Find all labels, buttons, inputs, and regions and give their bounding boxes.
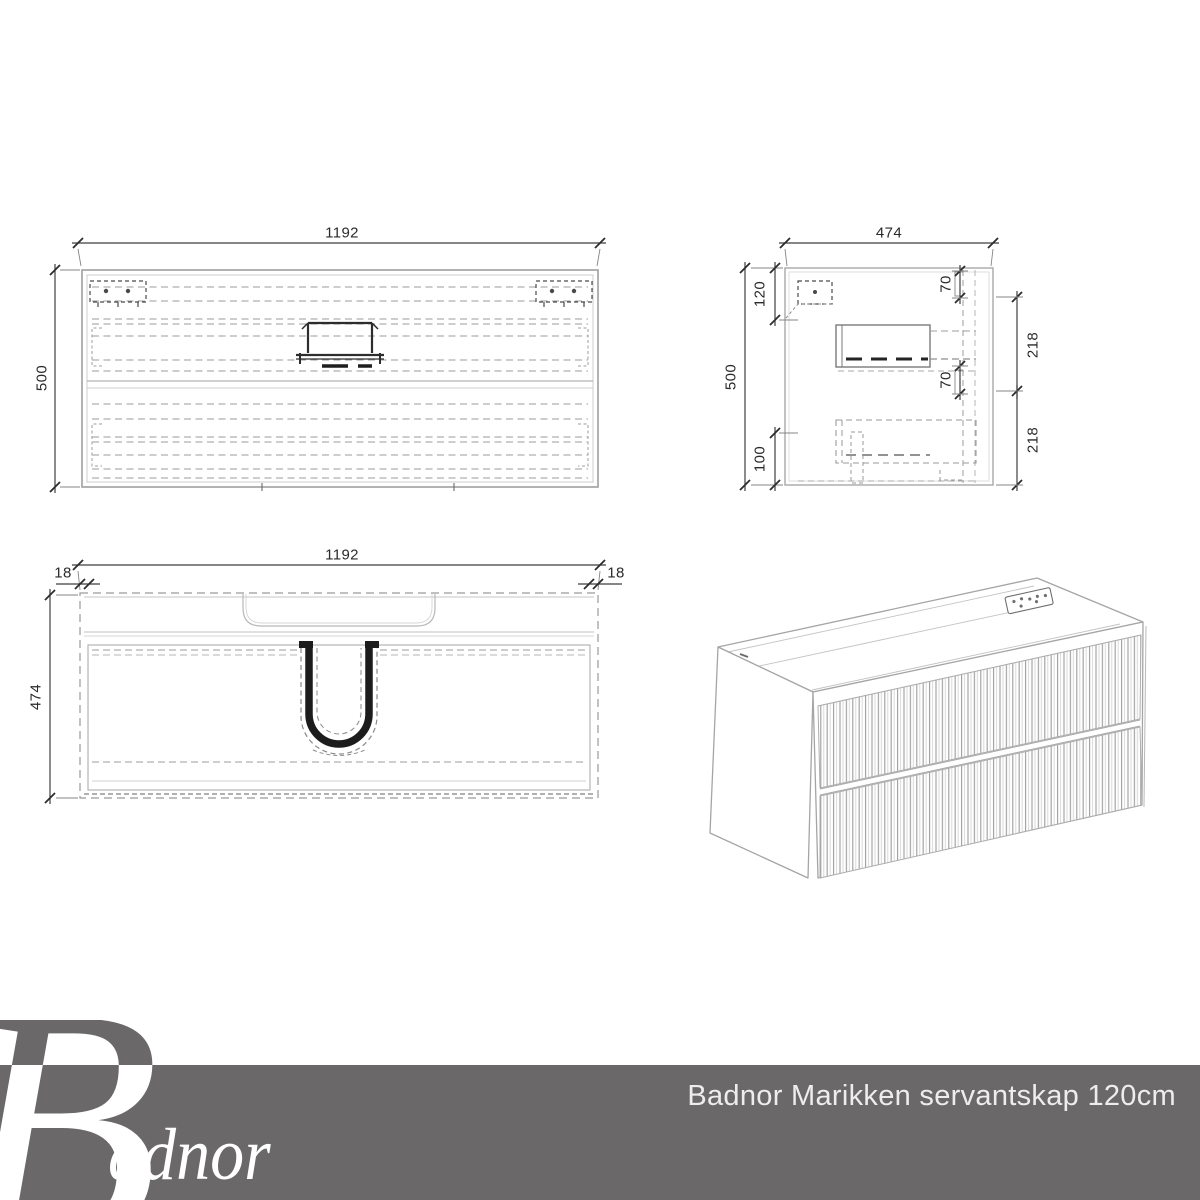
dim-top-depth: 474 bbox=[29, 684, 44, 710]
dim-front-width: 1192 bbox=[325, 226, 359, 241]
drain-bracket bbox=[296, 323, 384, 366]
dim-side-top: 120 bbox=[753, 281, 768, 307]
perspective-view bbox=[710, 578, 1146, 878]
product-label: Badnor Marikken servantskap 120cm bbox=[687, 1082, 1176, 1111]
lower-drawer-section bbox=[798, 420, 976, 483]
dim-front-height: 500 bbox=[35, 365, 50, 391]
mounting-bracket-side bbox=[786, 281, 832, 318]
dim-side-width: 474 bbox=[876, 226, 902, 241]
dim-side-bottom: 100 bbox=[753, 446, 768, 472]
dim-drawer-top: 218 bbox=[1026, 332, 1041, 358]
drawer-front-hidden-lines bbox=[955, 270, 975, 483]
side-view-dimensions bbox=[740, 238, 1023, 491]
upper-drawer-section bbox=[836, 325, 976, 371]
drain-cutout bbox=[299, 641, 379, 756]
drawer-slides bbox=[92, 328, 588, 466]
page: 1192 500 474 500 120 100 70 218 70 218 1… bbox=[0, 0, 1200, 1200]
side-view bbox=[740, 238, 1023, 491]
dim-drawer-bottom: 218 bbox=[1026, 427, 1041, 453]
front-view bbox=[50, 238, 606, 493]
dim-panel-left: 18 bbox=[54, 566, 72, 581]
dim-top-width: 1192 bbox=[325, 548, 359, 563]
mounting-bracket-right bbox=[536, 281, 592, 307]
dim-panel-right: 18 bbox=[607, 566, 625, 581]
dim-notch-bottom: 70 bbox=[939, 371, 954, 389]
hidden-structure-lines bbox=[92, 287, 588, 478]
logo-initial-upper-clip: B bbox=[0, 1020, 320, 1065]
brand-logo-initial: B bbox=[0, 1020, 160, 1065]
dim-notch-top: 70 bbox=[939, 275, 954, 293]
dim-side-height: 500 bbox=[724, 364, 739, 390]
handle-recess bbox=[243, 594, 435, 626]
mounting-bracket-left bbox=[90, 281, 146, 307]
top-view bbox=[45, 560, 622, 804]
brand-logo-text: adnor bbox=[108, 1118, 271, 1192]
